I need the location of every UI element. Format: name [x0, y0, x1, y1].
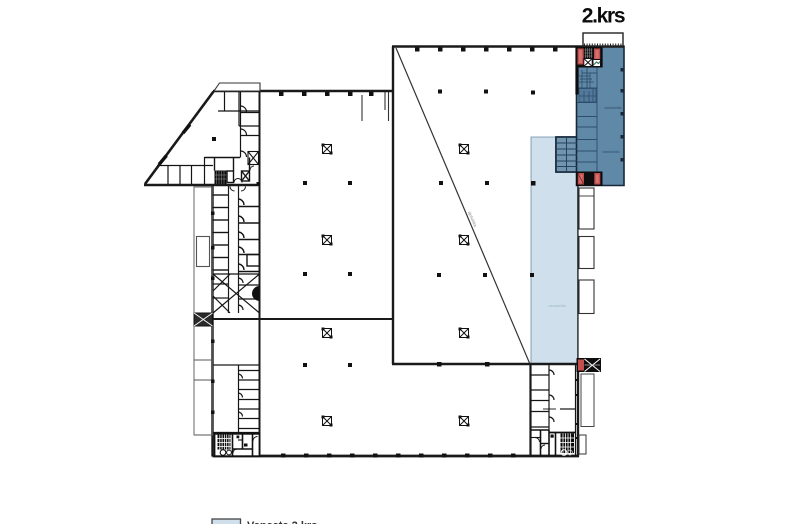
svg-text:varastotila: varastotila: [548, 304, 566, 308]
svg-text:toimistotila: toimistotila: [605, 106, 622, 110]
svg-text:2.krs: 2.krs: [582, 5, 625, 28]
svg-text:toimistotila: toimistotila: [603, 150, 620, 154]
svg-text:Vapaata 2.krs: Vapaata 2.krs: [247, 520, 317, 524]
